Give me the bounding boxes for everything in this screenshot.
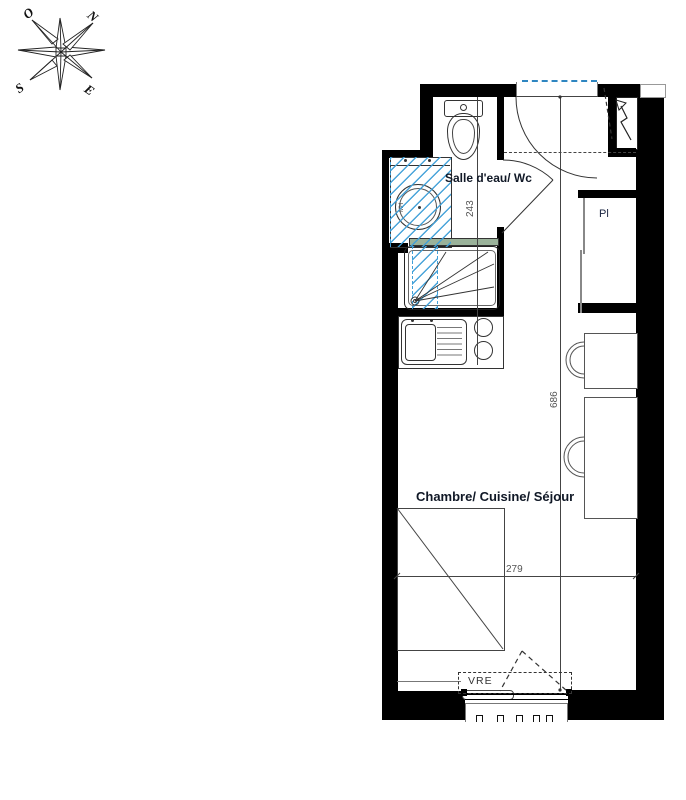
compass-letters: O N S E — [12, 4, 102, 99]
wall-top-right — [598, 84, 641, 97]
balcony-post — [533, 715, 540, 722]
toilet-flush-button — [460, 104, 467, 111]
kitchen-faucet-dot-1 — [411, 319, 414, 322]
kitchen-drainboard — [437, 327, 462, 357]
entry-lintel — [516, 96, 598, 97]
entry-soffit-dashed-line — [504, 152, 636, 153]
balcony-side-left — [465, 703, 466, 722]
wall-bath-left — [420, 84, 433, 158]
dim-line-243 — [477, 97, 478, 365]
chair-2 — [564, 437, 584, 477]
kitchen-faucet-dot-2 — [430, 319, 433, 322]
bed — [397, 508, 505, 651]
closet-sliding-door-2 — [580, 250, 582, 313]
closet-sliding-door-1 — [583, 198, 585, 254]
entry-door-arc — [516, 97, 597, 178]
floor-plan: MH — [0, 0, 686, 800]
dim-line-686 — [560, 97, 561, 690]
balcony-post — [516, 715, 523, 722]
balcony-slab-edge — [465, 703, 568, 704]
bathroom-door-leaf — [502, 180, 553, 233]
closet-wall-bottom — [578, 303, 636, 313]
entry-demolition-dashed-line — [522, 80, 597, 82]
compass-east: E — [81, 81, 98, 99]
balcony-post — [497, 715, 504, 722]
wall-top-left — [420, 84, 516, 97]
wall-notch — [640, 84, 666, 98]
compass-north: N — [84, 7, 102, 26]
shutter-label: VRE — [468, 675, 493, 687]
compass-rose — [18, 18, 105, 90]
chair-1 — [566, 342, 584, 378]
wall-left — [382, 247, 398, 720]
compass-south: S — [12, 80, 27, 96]
wall-bottom-left — [382, 691, 465, 720]
balcony-post — [476, 715, 483, 722]
dim-line-279 — [397, 576, 636, 577]
compass-west: O — [20, 4, 37, 22]
table-small — [584, 333, 638, 389]
wall-right — [636, 95, 664, 720]
entry-jamb-right — [597, 82, 598, 97]
closet-label: Pl — [599, 208, 609, 220]
kitchen-sink-basin — [405, 324, 436, 361]
entry-jamb-left — [516, 82, 517, 97]
bathroom-label: Salle d'eau/ Wc — [445, 171, 532, 185]
balcony-side-right — [567, 703, 568, 722]
entry-arrow-box — [616, 97, 638, 150]
table-large — [584, 397, 638, 519]
wall-left-thin — [382, 150, 389, 247]
dim-279-label: 279 — [506, 564, 523, 575]
wall-bath-right-upper — [497, 97, 504, 160]
dim-243-label: 243 — [465, 200, 476, 217]
dim-686-label: 686 — [549, 391, 560, 408]
window-line-inner — [465, 699, 568, 700]
closet-wall-top — [578, 190, 636, 198]
renovation-hatch-vanity — [390, 157, 451, 247]
renovation-hatch-shower — [412, 246, 438, 309]
main-room-label: Chambre/ Cuisine/ Séjour — [416, 489, 574, 504]
wall-bottom-right — [568, 690, 663, 720]
line-under-window — [397, 681, 461, 682]
balcony-post — [546, 715, 553, 722]
